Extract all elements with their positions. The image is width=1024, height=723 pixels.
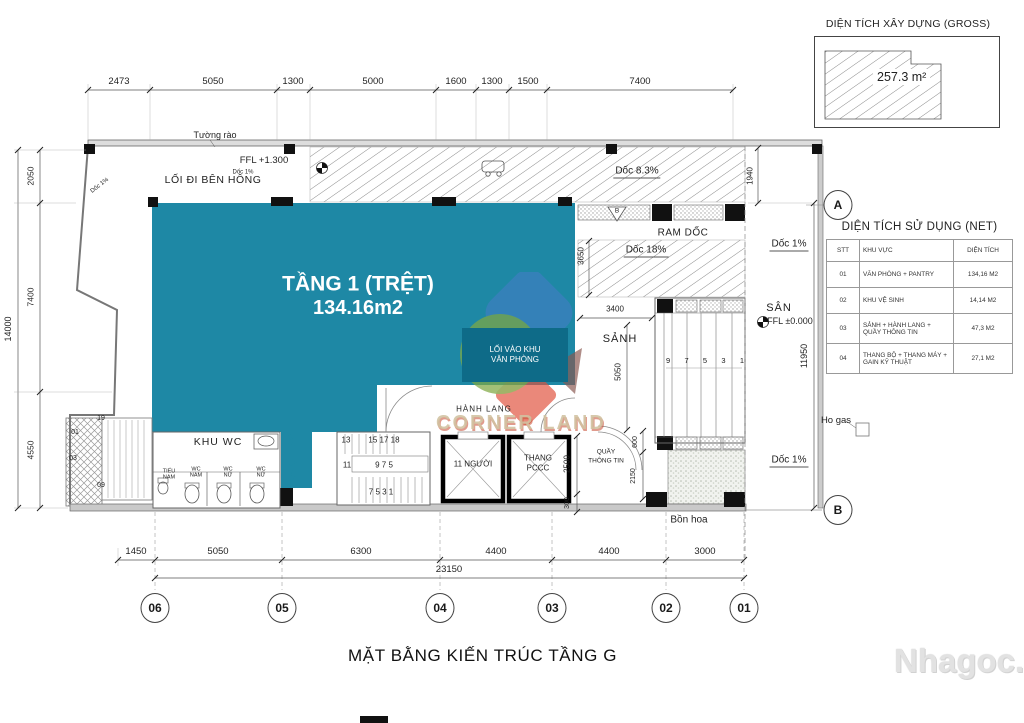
- corridor-label: HÀNH LANG: [456, 406, 512, 415]
- spot-03: 03: [69, 455, 77, 463]
- info-desk-label-1: QUẦY: [597, 448, 615, 455]
- dim-ramp-top: 1940: [747, 167, 756, 185]
- parking-numbers-right: 9 7 5 3 1: [666, 356, 744, 365]
- parking-bay: [655, 298, 745, 443]
- elevator-label: 11 NGƯỜI: [454, 461, 492, 470]
- info-desk-label-2: THÔNG TIN: [588, 457, 624, 464]
- net-3-m2: 47,3 M2: [954, 314, 1013, 344]
- gross-title: DIỆN TÍCH XÂY DỰNG (GROSS): [806, 18, 1010, 30]
- fence-label: Tường rào: [194, 131, 237, 141]
- dim-bottom-2: 5050: [207, 547, 228, 557]
- net-row-4: 04 THANG BỘ + THANG MÁY + GAIN KỸ THUẬT …: [827, 344, 1013, 374]
- dim-bottom-total: 23150: [436, 565, 462, 575]
- net-4-stt: 04: [827, 344, 860, 374]
- net-header-stt: STT: [827, 240, 860, 262]
- net-2-stt: 02: [827, 288, 860, 314]
- dim-top-7: 1500: [517, 77, 538, 87]
- dim-top-4: 5000: [362, 77, 383, 87]
- grid-col-03: 03: [538, 593, 567, 623]
- fire-elevator-label-1: THANG: [524, 455, 552, 464]
- slope-83-label: Dốc 8.3%: [613, 166, 660, 179]
- planter-label: Bồn hoa: [670, 515, 707, 526]
- dim-top-8: 7400: [629, 77, 650, 87]
- net-3-area: SẢNH + HÀNH LANG + QUẦY THÔNG TIN: [860, 314, 954, 344]
- net-area-panel: DIỆN TÍCH SỬ DỤNG (NET) STT KHU VỰC DIỆN…: [826, 221, 1013, 374]
- entry-line1: LỐI VÀO KHU: [489, 345, 540, 355]
- grid-row-a: A: [824, 190, 853, 220]
- stair-num-2: 15 17 18: [368, 437, 399, 446]
- ffl-1300-label: FFL +1.300: [240, 156, 289, 166]
- dim-top-3: 1300: [282, 77, 303, 87]
- grid-row-b: B: [824, 495, 853, 525]
- dim-top-1: 2473: [108, 77, 129, 87]
- gas-box: [856, 423, 869, 436]
- dim-bottom-1: 1450: [125, 547, 146, 557]
- spot-9: 9: [666, 356, 670, 365]
- fire-elevator-label-2: PCCC: [527, 465, 550, 474]
- side-walkway-label: LỐI ĐI BÊN HÔNG: [165, 175, 262, 187]
- dim-left-1: 2050: [26, 167, 35, 186]
- net-1-area: VĂN PHÒNG + PANTRY: [860, 262, 954, 288]
- corner-land-watermark: CORNER LAND: [436, 412, 606, 435]
- dim-top-5: 1600: [445, 77, 466, 87]
- gross-area-panel: DIỆN TÍCH XÂY DỰNG (GROSS) 257.3 m²: [806, 18, 1010, 128]
- spot-3: 3: [721, 356, 725, 365]
- dim-elev-b: 300: [564, 497, 572, 509]
- dim-bottom-4: 4400: [485, 547, 506, 557]
- net-title: DIỆN TÍCH SỬ DỤNG (NET): [826, 221, 1013, 233]
- lobby-label: SẢNH: [603, 333, 638, 345]
- drawing-title: MẶT BẰNG KIẾN TRÚC TẦNG G: [348, 646, 617, 666]
- net-1-m2: 134,16 M2: [954, 262, 1013, 288]
- ramp-label: RAM DỐC: [658, 228, 709, 239]
- dim-desk-top: 600: [632, 436, 640, 448]
- gas-label: Ho gas: [821, 416, 851, 426]
- spot-19: 19: [97, 415, 105, 423]
- wc-women-label-1: WC NỮ: [221, 467, 235, 480]
- wc-women-label-2: WC NỮ: [254, 467, 268, 480]
- spot-7: 7: [684, 356, 688, 365]
- dim-desk-h: 2150: [630, 468, 638, 484]
- net-row-1: 01 VĂN PHÒNG + PANTRY 134,16 M2: [827, 262, 1013, 288]
- gross-diagram: 257.3 m²: [814, 36, 1000, 128]
- dim-left-3: 4550: [26, 441, 35, 460]
- net-2-m2: 14,14 M2: [954, 288, 1013, 314]
- stair-num-1: 13: [342, 437, 351, 446]
- office-entry-box: LỐI VÀO KHU VĂN PHÒNG: [462, 328, 568, 382]
- wc-room-label: KHU WC: [194, 437, 243, 449]
- gross-area-value: 257.3 m²: [873, 69, 930, 85]
- spot-5: 5: [703, 356, 707, 365]
- dim-lobby-h: 5050: [615, 363, 624, 381]
- dim-left-total: 14000: [4, 316, 14, 341]
- urinal-label: TIỂU NAM: [160, 469, 178, 482]
- net-1-stt: 01: [827, 262, 860, 288]
- spot-09: 09: [97, 482, 105, 490]
- grid-col-02: 02: [652, 593, 681, 623]
- grid-col-05: 05: [268, 593, 297, 623]
- dim-bottom-3: 6300: [350, 547, 371, 557]
- ffl-0-label: FFL ±0.000: [767, 317, 813, 327]
- spot-01: 01: [71, 429, 79, 437]
- grid-col-06: 06: [141, 593, 170, 623]
- entry-line2: VĂN PHÒNG: [491, 355, 539, 365]
- main-room-title: TẦNG 1 (TRỆT): [282, 272, 434, 295]
- section-b-label: B: [615, 207, 619, 214]
- dim-left-2: 7400: [26, 288, 35, 307]
- stair-num-4: 9 7 5: [375, 462, 393, 471]
- grid-col-01: 01: [730, 593, 759, 623]
- net-row-3: 03 SẢNH + HÀNH LANG + QUẦY THÔNG TIN 47,…: [827, 314, 1013, 344]
- site-watermark: Nhagoc.vn: [894, 642, 1024, 680]
- net-4-area: THANG BỘ + THANG MÁY + GAIN KỸ THUẬT: [860, 344, 954, 374]
- wc-men-label: WC NAM: [188, 467, 204, 480]
- left-stair: [102, 418, 152, 500]
- spot-1: 1: [740, 356, 744, 365]
- net-2-area: KHU VỆ SINH: [860, 288, 954, 314]
- net-row-2: 02 KHU VỆ SINH 14,14 M2: [827, 288, 1013, 314]
- stair-num-3: 11: [343, 462, 351, 471]
- net-table: STT KHU VỰC DIỆN TÍCH 01 VĂN PHÒNG + PAN…: [826, 239, 1013, 374]
- dim-lobby-w: 3400: [606, 306, 624, 315]
- dim-top-6: 1300: [481, 77, 502, 87]
- slope-1-lower-label: Dốc 1%: [769, 455, 808, 468]
- dim-elev-h: 2500: [564, 455, 573, 473]
- slope-1-small-label: Dốc 1%: [232, 170, 253, 177]
- dim-top-2: 5050: [202, 77, 223, 87]
- yard-label: SÂN: [766, 302, 792, 314]
- dim-bottom-5: 4400: [598, 547, 619, 557]
- net-3-stt: 03: [827, 314, 860, 344]
- floor-plan-canvas: CORNER LAND TẦNG 1 (TRỆT) 134.16m2 LỐI V…: [0, 0, 1024, 723]
- stair-num-5: 7 5 3 1: [369, 489, 393, 498]
- net-4-m2: 27,1 M2: [954, 344, 1013, 374]
- dim-right-side: 11950: [800, 344, 810, 368]
- grid-col-04: 04: [426, 593, 455, 623]
- pantry-label: PANTRY: [287, 433, 301, 486]
- slope-18-label: Dốc 18%: [624, 245, 669, 258]
- dim-ramp-mid: 3650: [578, 247, 587, 265]
- net-header-m2: DIỆN TÍCH: [954, 240, 1013, 262]
- net-header-row: STT KHU VỰC DIỆN TÍCH: [827, 240, 1013, 262]
- main-room-area: 134.16m2: [313, 297, 403, 319]
- net-header-area: KHU VỰC: [860, 240, 954, 262]
- slope-1-upper-label: Dốc 1%: [769, 239, 808, 252]
- dim-bottom-6: 3000: [694, 547, 715, 557]
